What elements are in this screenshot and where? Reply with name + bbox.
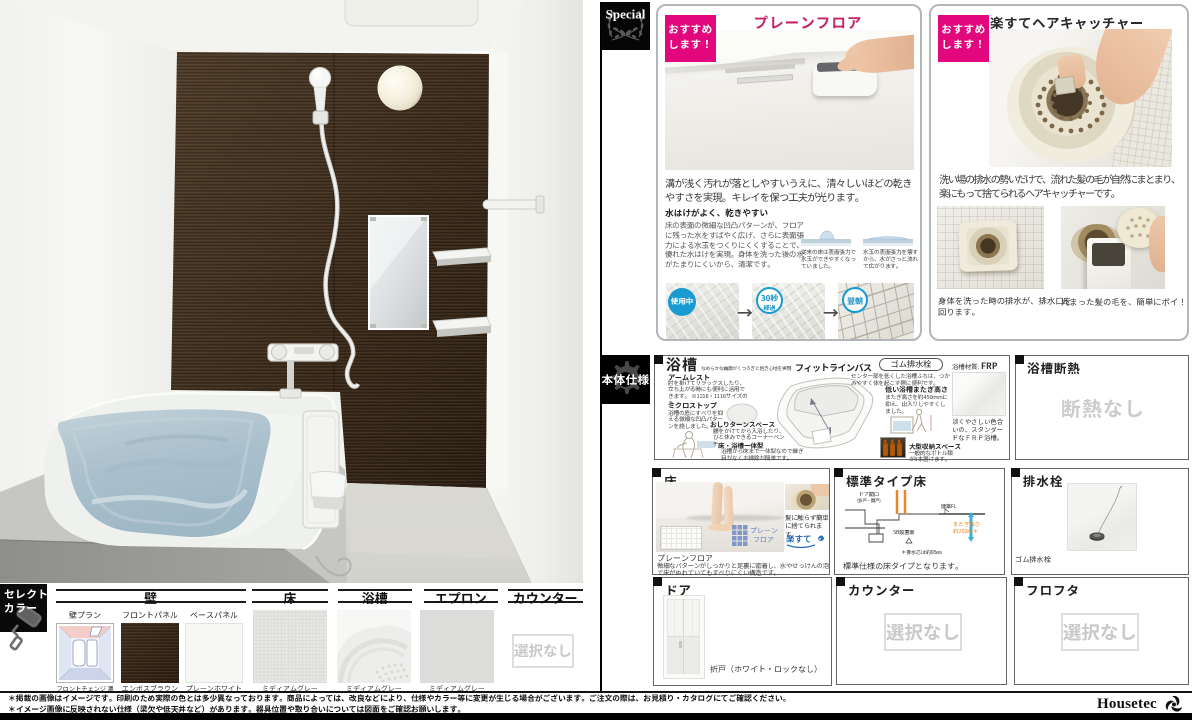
svg-text:フロア: フロア: [753, 535, 774, 545]
svg-text:SB設置面: SB設置面: [893, 529, 914, 536]
svg-text:ドア開口: ドア開口: [859, 491, 879, 498]
svg-text:本体仕様: 本体仕様: [602, 372, 650, 388]
svg-text:約202㎜＊: 約202㎜＊: [953, 527, 978, 535]
svg-text:建築FL: 建築FL: [941, 503, 957, 510]
svg-text:(折戸・開戸): (折戸・開戸): [857, 498, 881, 504]
svg-text:Special: Special: [606, 7, 646, 22]
svg-text:＊排水芯は約95㎜: ＊排水芯は約95㎜: [901, 549, 942, 556]
svg-text:楽すて: 楽すて: [786, 533, 812, 545]
